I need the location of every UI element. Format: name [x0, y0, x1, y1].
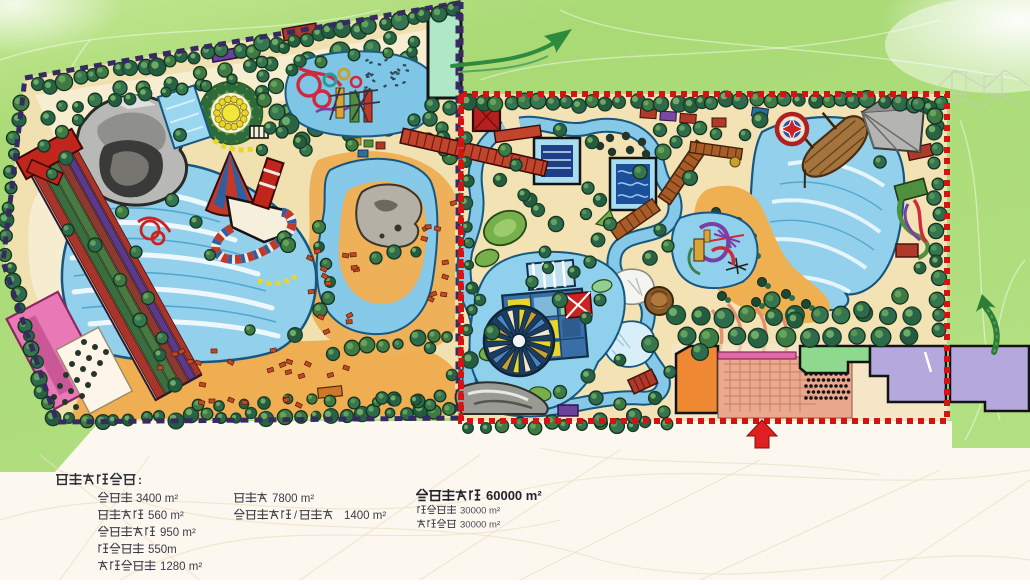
svg-text::: : [138, 473, 142, 487]
svg-text:60000 m²: 60000 m² [486, 488, 542, 503]
svg-text:1400 m²: 1400 m² [344, 510, 386, 522]
svg-text:30000 m²: 30000 m² [460, 506, 500, 517]
svg-text:560 m²: 560 m² [148, 510, 184, 522]
svg-text:950 m²: 950 m² [160, 527, 196, 539]
svg-text:550m: 550m [148, 544, 177, 556]
svg-text:30000 m²: 30000 m² [460, 520, 500, 531]
svg-text:3400 m²: 3400 m² [136, 493, 178, 505]
svg-text:1280 m²: 1280 m² [160, 561, 202, 573]
svg-text:7800 m²: 7800 m² [272, 493, 314, 505]
